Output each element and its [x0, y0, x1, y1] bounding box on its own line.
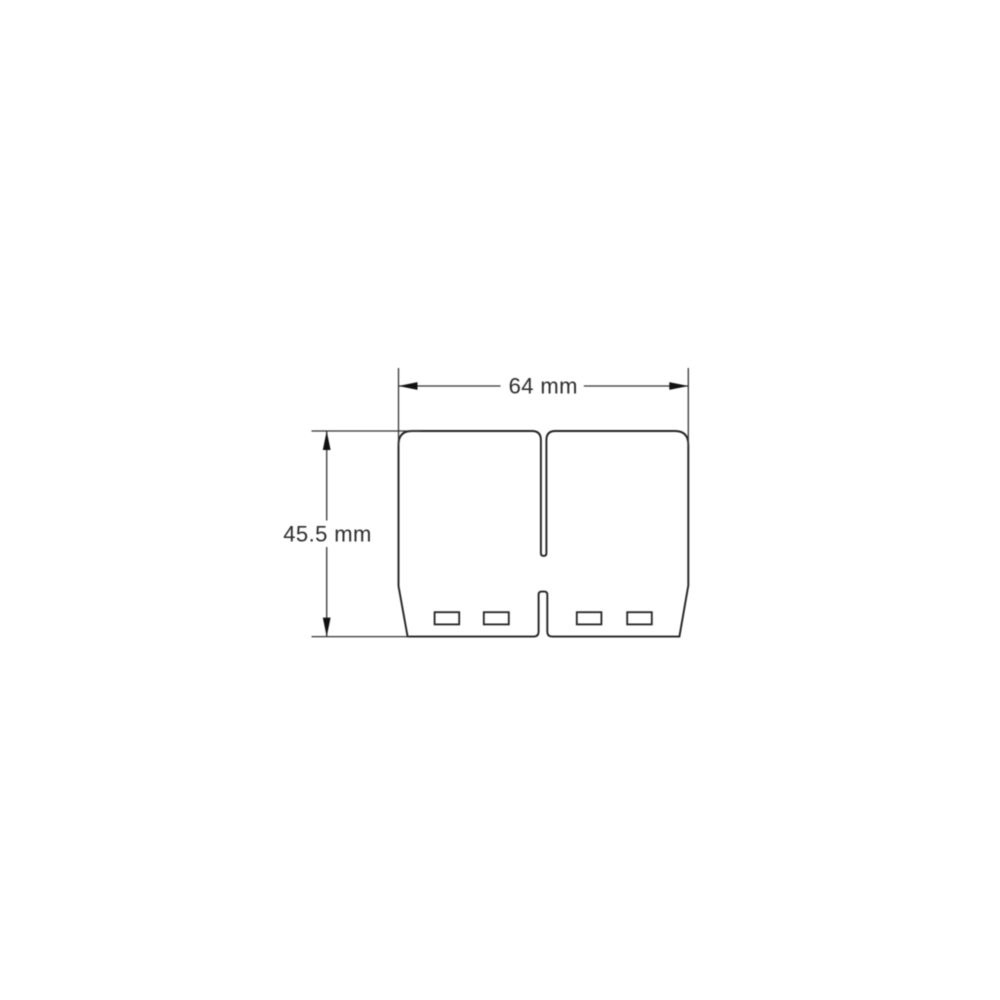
svg-text:45.5 mm: 45.5 mm [283, 522, 371, 547]
svg-text:64 mm: 64 mm [509, 374, 578, 399]
